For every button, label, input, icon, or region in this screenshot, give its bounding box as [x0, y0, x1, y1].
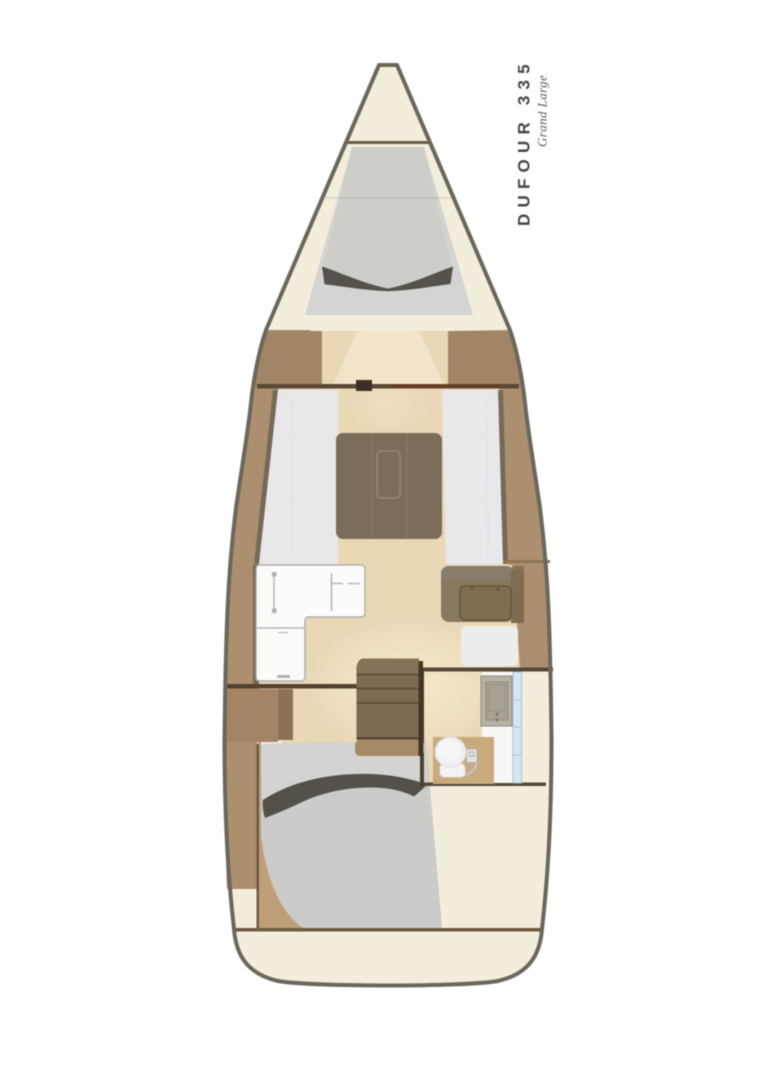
- svg-text:DUFOUR 335: DUFOUR 335: [515, 58, 534, 226]
- svg-text:Grand Large: Grand Large: [535, 75, 550, 147]
